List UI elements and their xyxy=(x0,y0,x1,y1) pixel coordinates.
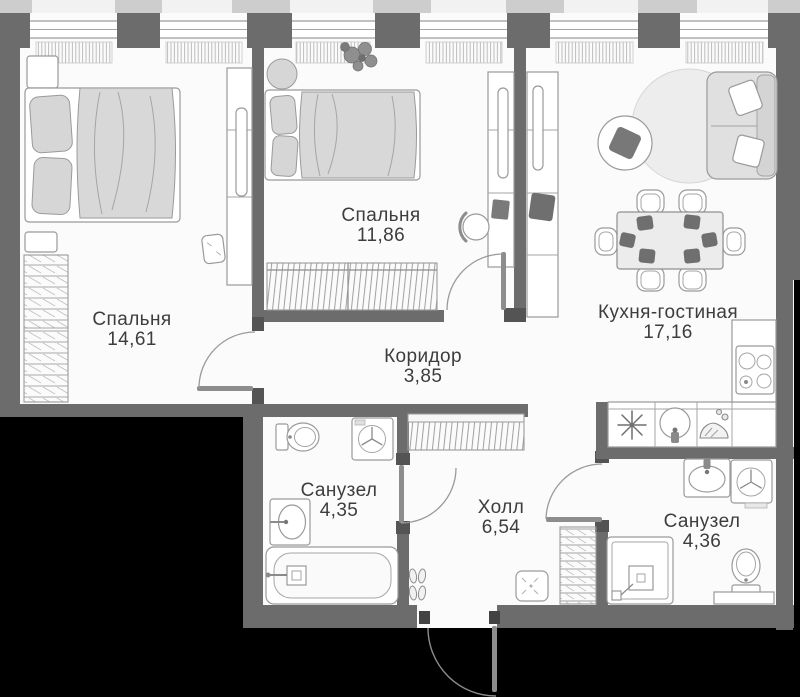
bathroom2-left-wall xyxy=(596,520,608,607)
mirror xyxy=(236,108,247,196)
snowflake-icon xyxy=(618,411,646,439)
shower-head xyxy=(612,591,621,600)
coffee-table xyxy=(598,116,652,170)
room-name: Спальня xyxy=(92,310,171,330)
room-label-bathroom-2: Санузел 4,36 xyxy=(664,512,741,552)
room-area: 11,86 xyxy=(341,226,420,246)
tap xyxy=(671,432,679,443)
door-post xyxy=(252,388,264,404)
toilet-icon xyxy=(276,423,319,451)
blanket xyxy=(77,88,176,218)
bathroom-shelf xyxy=(714,592,774,604)
shower-drain xyxy=(629,566,653,590)
radiator-icon xyxy=(686,42,763,63)
laptop xyxy=(491,199,510,220)
floor-plan: Спальня 14,61 Спальня 11,86 Коридор 3,85… xyxy=(0,0,800,697)
room-label-corridor: Коридор 3,85 xyxy=(384,347,462,387)
side-table xyxy=(267,59,297,89)
wall-unit xyxy=(227,68,252,285)
mirror xyxy=(533,86,543,170)
sofa xyxy=(707,72,777,179)
room-area: 4,36 xyxy=(664,532,741,552)
pillow xyxy=(32,157,73,215)
room-name: Спальня xyxy=(341,206,420,226)
mirror xyxy=(498,88,508,178)
radiator-icon xyxy=(166,42,242,63)
kitchen-counter xyxy=(608,402,776,447)
room-label-bedroom-2: Спальня 11,86 xyxy=(341,206,420,246)
radiator-icon xyxy=(556,42,633,63)
pillow xyxy=(269,95,297,135)
lower-left-exterior-wall xyxy=(243,417,263,607)
door-post xyxy=(396,453,410,465)
desk-chair xyxy=(460,213,489,241)
desk-unit xyxy=(488,72,514,267)
doormat xyxy=(516,571,548,601)
room-name: Кухня-гостиная xyxy=(598,303,738,323)
double-bed xyxy=(265,90,420,180)
four-burner-stove-icon xyxy=(736,346,774,394)
left-exterior-wall xyxy=(0,13,20,417)
door-post xyxy=(252,317,264,331)
pillow xyxy=(271,135,299,177)
nightstand xyxy=(27,56,58,88)
double-bed xyxy=(25,88,180,222)
toilet-icon xyxy=(732,549,760,596)
room-label-hall: Холл 6,54 xyxy=(478,498,524,538)
room-name: Санузел xyxy=(301,481,378,501)
room-label-bathroom-1: Санузел 4,35 xyxy=(301,481,378,521)
entry-door-post xyxy=(489,611,500,624)
room-label-bedroom-1: Спальня 14,61 xyxy=(92,310,171,350)
room-area: 3,85 xyxy=(384,367,462,387)
room-name: Коридор xyxy=(384,347,462,367)
wardrobe xyxy=(267,263,437,310)
right-exterior-wall xyxy=(776,13,800,280)
washing-machine-icon xyxy=(731,460,772,508)
pillow xyxy=(29,95,73,154)
door-post xyxy=(504,308,526,322)
shelving-column xyxy=(527,72,558,317)
entry-door-post xyxy=(419,611,430,624)
room-area: 14,61 xyxy=(92,330,171,350)
bedroom2-bottom-wall xyxy=(264,310,444,322)
kitchen-bathroom2-wall xyxy=(596,447,794,459)
room-area: 4,35 xyxy=(301,501,378,521)
coat-rack xyxy=(408,414,524,450)
nightstand xyxy=(25,232,57,252)
bedroom-partition-wall xyxy=(252,48,264,330)
pouf xyxy=(201,234,225,264)
washing-machine-icon xyxy=(352,418,393,460)
room-label-kitchen-living: Кухня-гостиная 17,16 xyxy=(598,303,738,343)
bathtub-icon xyxy=(266,547,399,604)
shoe-rack xyxy=(560,527,596,604)
blanket xyxy=(300,92,417,178)
room-name: Санузел xyxy=(664,512,741,532)
tv xyxy=(528,192,555,221)
facade-strip xyxy=(0,0,800,13)
radiator-icon xyxy=(426,42,502,63)
room-name: Холл xyxy=(478,498,524,518)
bottom-exterior-wall xyxy=(243,605,417,628)
bedroom2-kitchen-wall xyxy=(514,48,526,308)
bottom-exterior-wall xyxy=(497,605,794,628)
pillow xyxy=(732,134,765,168)
stove-counter xyxy=(732,320,776,402)
room-area: 6,54 xyxy=(478,518,524,538)
facade-pillars xyxy=(0,13,800,48)
bathroom-sink-icon xyxy=(684,459,730,497)
bath-tap xyxy=(287,566,306,585)
room-area: 17,16 xyxy=(598,323,738,343)
